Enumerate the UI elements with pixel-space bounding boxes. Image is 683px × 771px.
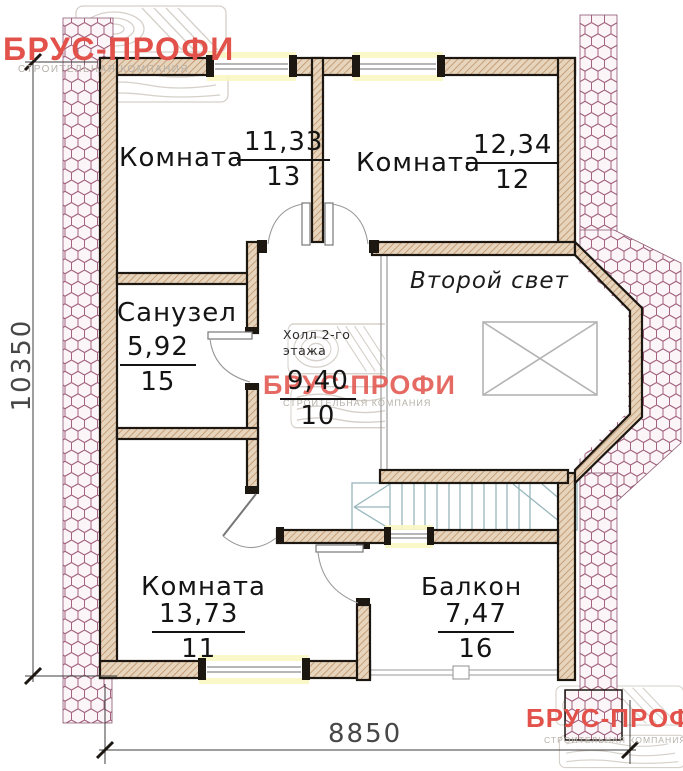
room-top-right-name: Комната <box>356 148 481 178</box>
balcony-area: 7,47 16 <box>438 599 514 664</box>
room-number: 13 <box>237 161 330 192</box>
room-top-left-area: 11,33 13 <box>237 127 330 192</box>
room-bottom-name: Комната <box>141 572 266 602</box>
area-value: 5,92 <box>120 332 196 366</box>
wall-right-upper <box>558 58 575 245</box>
area-value: 9,40 <box>280 366 356 400</box>
wall-left <box>100 58 117 678</box>
room-number: 16 <box>438 633 514 664</box>
logo-subtitle-bottom-right: СТРОИТЕЛЬНАЯ КОМПАНИЯ <box>544 735 683 745</box>
railing-post <box>453 666 469 679</box>
room-top-left-name: Комната <box>119 143 244 173</box>
window-top-right <box>352 52 445 81</box>
wall-bathroom-bottom <box>117 428 258 439</box>
floor-plan-page: БРУС-ПРОФИ СТРОИТЕЛЬНАЯ КОМПАНИЯ БРУС-ПР… <box>0 0 683 771</box>
wall-right-lower <box>558 473 575 680</box>
room-number: 11 <box>152 633 245 664</box>
wall-hall-left-upper <box>247 242 258 333</box>
dimension-width: 8850 <box>328 719 402 749</box>
room-top-right-area: 12,34 12 <box>466 130 559 195</box>
logo-text-top-left: БРУС-ПРОФИ <box>3 31 235 67</box>
wall-bay-top <box>372 242 575 255</box>
second-light-name: Второй свет <box>410 268 569 294</box>
hall-area: 9,40 10 <box>280 366 356 431</box>
wall-top-3 <box>438 58 575 75</box>
logo-subtitle-top-left: СТРОИТЕЛЬНАЯ КОМПАНИЯ <box>18 64 189 75</box>
hall-name: Холл 2-го этажа <box>283 327 377 360</box>
room-number: 15 <box>120 366 196 397</box>
area-value: 13,73 <box>152 599 245 633</box>
wall-balcony-divider <box>357 605 370 680</box>
area-value: 12,34 <box>466 130 559 164</box>
wall-stairs-south-2 <box>428 530 558 543</box>
bathroom-name: Санузел <box>117 298 237 328</box>
area-value: 7,47 <box>438 599 514 633</box>
dimension-height: 10350 <box>7 310 37 420</box>
wall-bay-bottom <box>380 470 568 483</box>
room-bottom-area: 13,73 11 <box>152 599 245 664</box>
room-number: 10 <box>280 400 356 431</box>
room-number: 12 <box>466 164 559 195</box>
bathroom-area: 5,92 15 <box>120 332 196 397</box>
wall-bathroom-top <box>117 273 250 284</box>
balcony-name: Балкон <box>421 572 522 601</box>
wall-stairs-south-1 <box>277 530 390 543</box>
logo-text-bottom-right: БРУС-ПРОФИ <box>526 703 683 733</box>
area-value: 11,33 <box>237 127 330 161</box>
window-stairs-wall <box>384 525 434 548</box>
